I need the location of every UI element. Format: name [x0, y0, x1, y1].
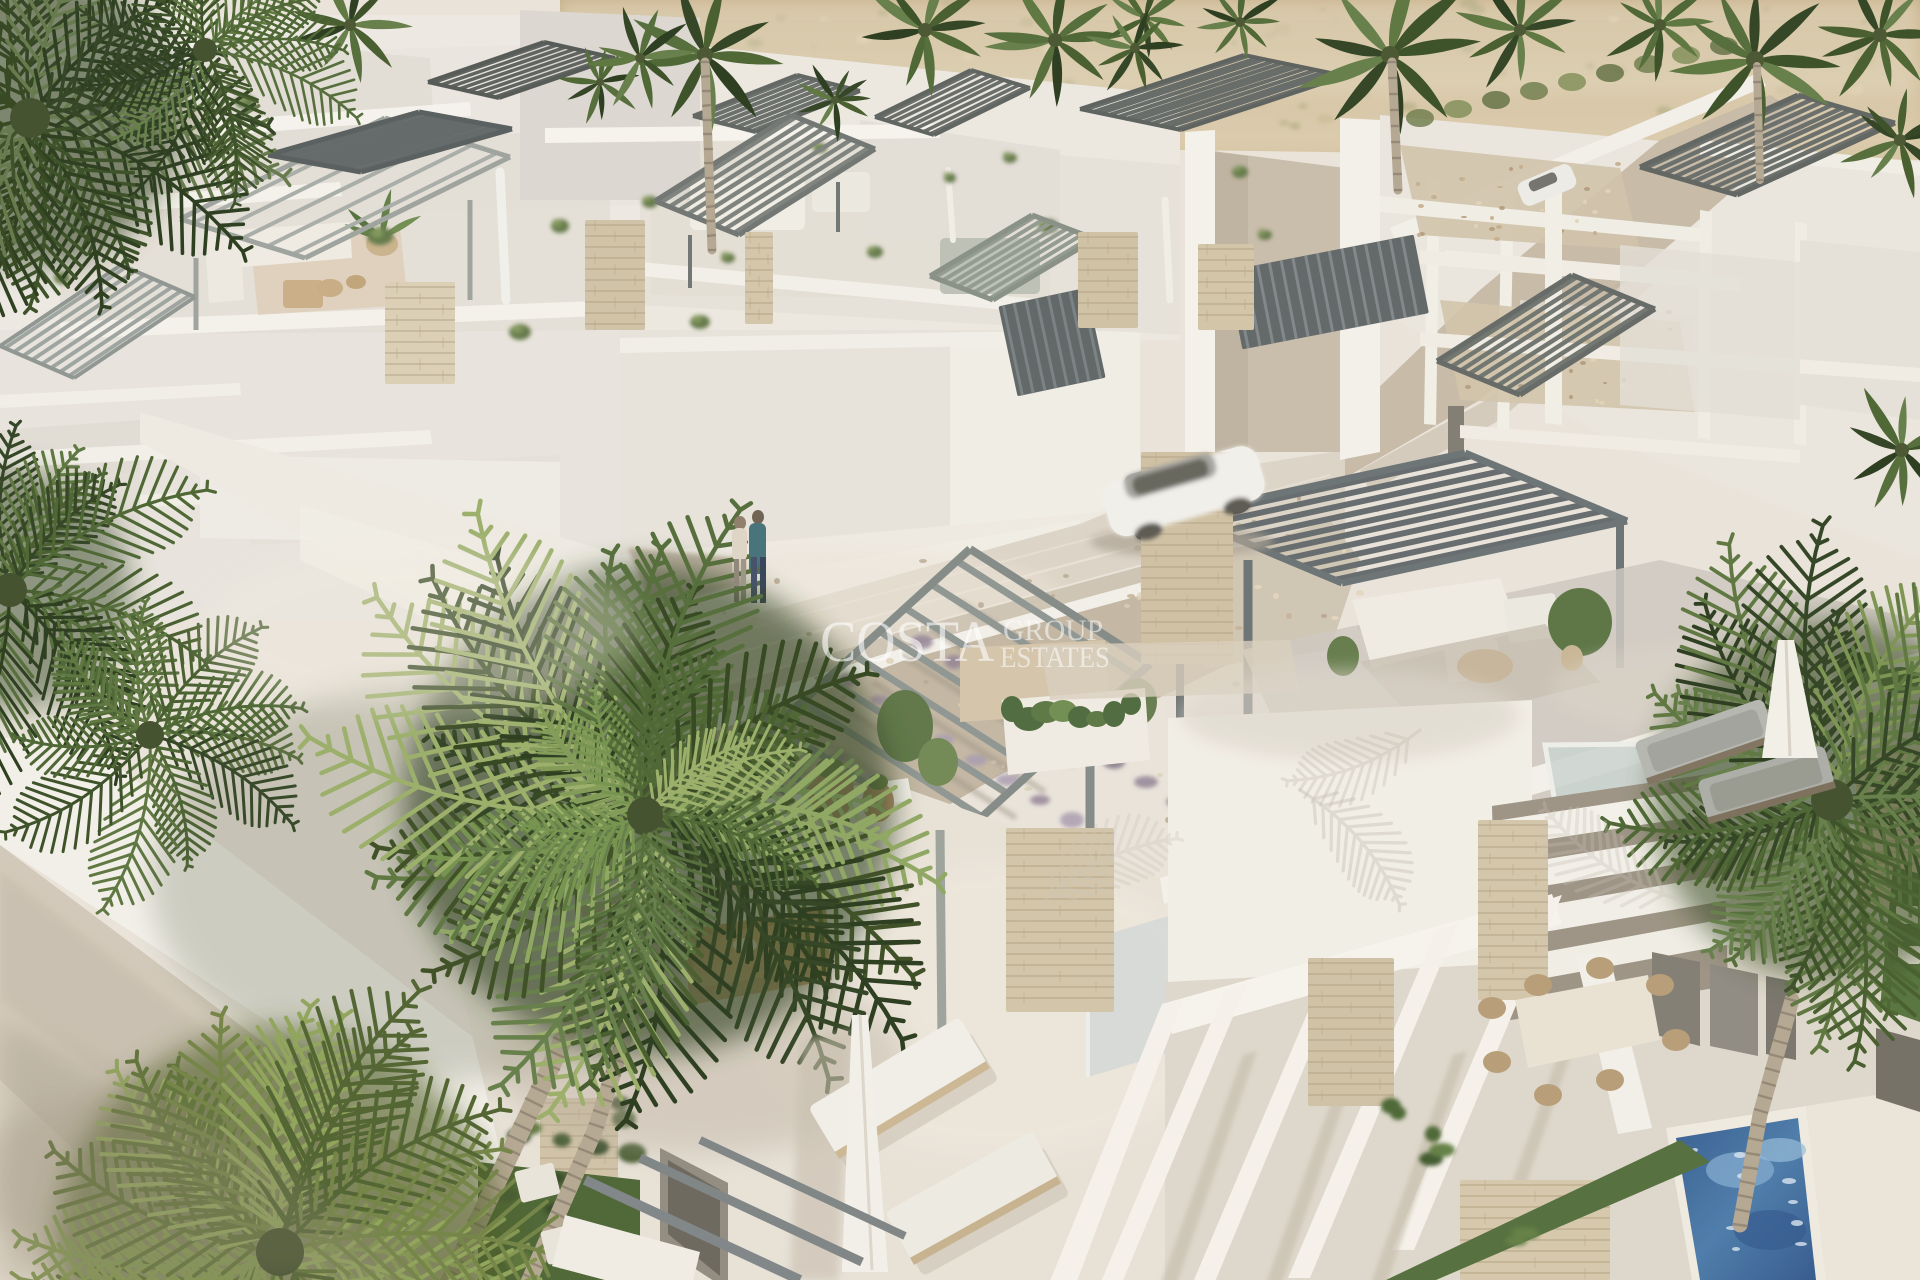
- svg-text:COSTA: COSTA: [820, 609, 994, 674]
- svg-text:ESTATES: ESTATES: [1000, 641, 1110, 674]
